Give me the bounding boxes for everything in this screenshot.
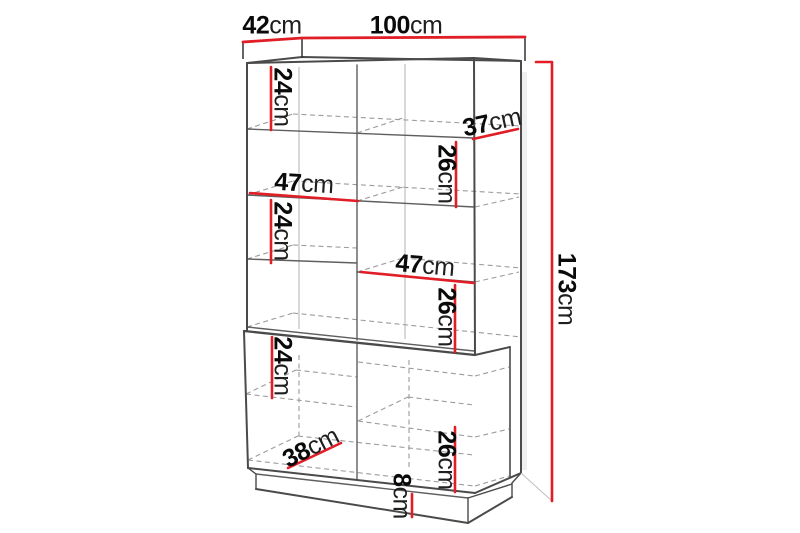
dim-label-left-column-width: 47cm <box>274 170 335 199</box>
dim-label-total-height: 173cm <box>554 253 579 326</box>
dim-label-upper-right-cell2: 26cm <box>434 287 459 346</box>
upper-front-right-edge <box>474 58 475 355</box>
cabinet-shadow <box>522 72 527 470</box>
dim-label-lower-left-cell: 24cm <box>270 336 295 395</box>
dim-label-right-column-width: 47cm <box>394 251 455 281</box>
extension-lines <box>521 473 552 501</box>
shelf-1 <box>247 129 474 138</box>
furniture-dimension-diagram: 42cm 100cm 173cm 24cm 37cm 26cm 47cm 24c… <box>0 0 800 533</box>
bottom-side-edge <box>475 473 521 493</box>
dim-label-upper-left-cell3: 24cm <box>270 201 295 260</box>
dim-label-upper-right-cell: 26cm <box>434 144 459 203</box>
dim-label-lower-right-cell: 26cm <box>434 430 459 489</box>
dimension-ticks <box>243 37 525 61</box>
dim-label-plinth-height: 8cm <box>389 473 414 519</box>
dim-label-top-depth: 42cm <box>242 14 301 39</box>
lower-top-side-edge <box>475 347 510 355</box>
dim-label-top-width: 100cm <box>370 14 443 39</box>
dim-label-upper-left-cell1: 24cm <box>270 67 295 126</box>
plinth-side-bottom <box>468 497 512 523</box>
dim-line-height <box>536 62 552 501</box>
lower-left-edge <box>244 331 248 468</box>
shelf-3-left <box>247 259 357 263</box>
